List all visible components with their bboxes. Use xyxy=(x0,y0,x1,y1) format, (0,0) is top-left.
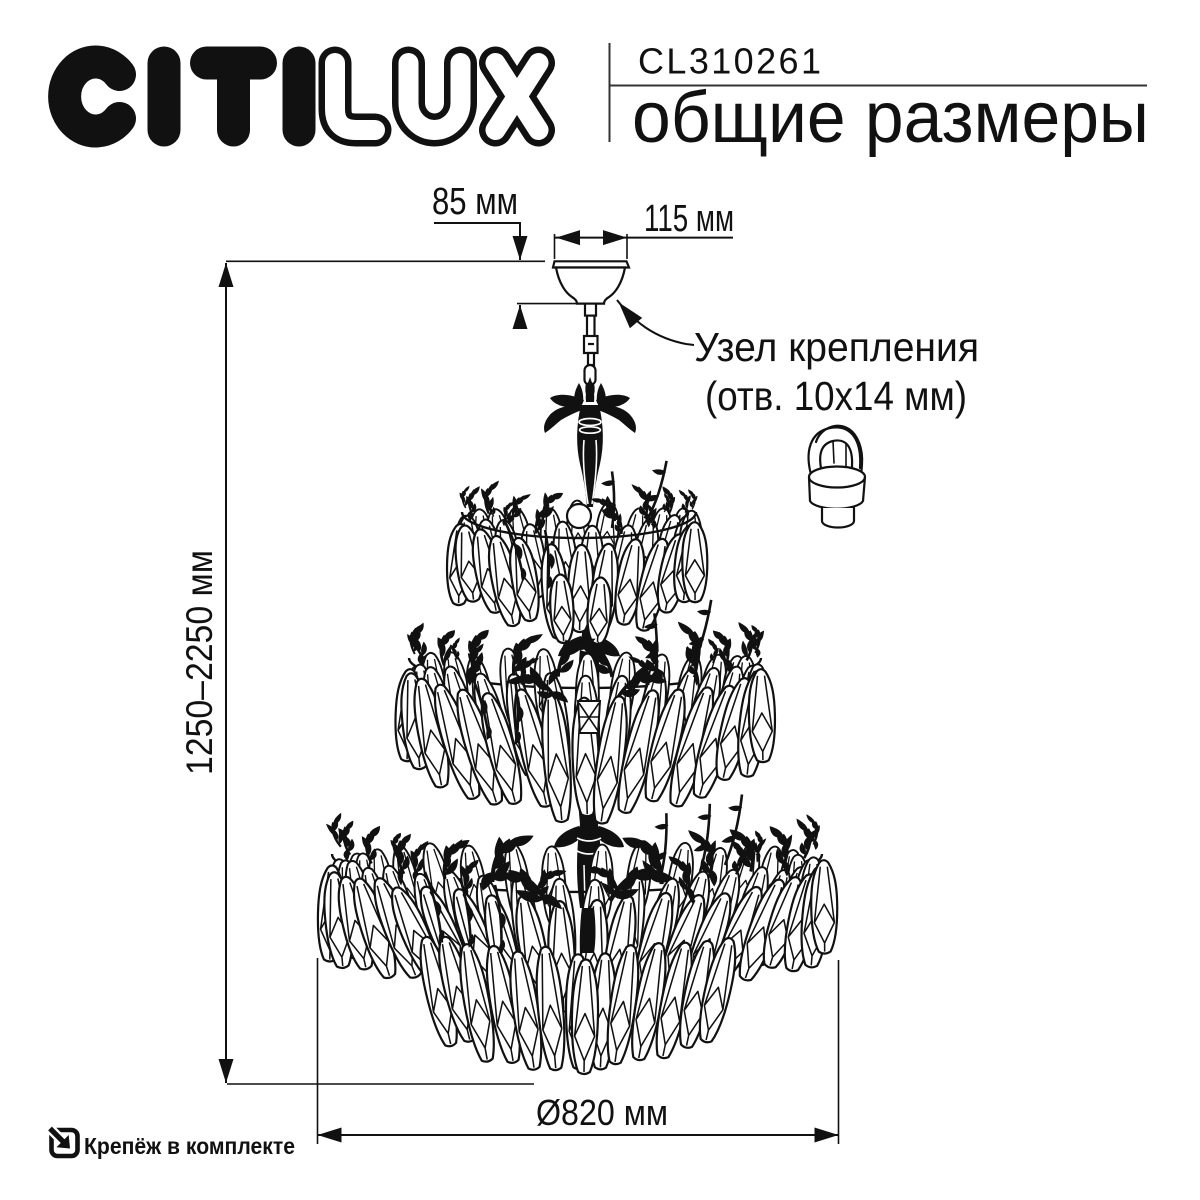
svg-text:(отв. 10х14 мм): (отв. 10х14 мм) xyxy=(705,373,967,419)
svg-text:115 мм: 115 мм xyxy=(644,198,734,240)
svg-text:Узел крепления: Узел крепления xyxy=(694,324,979,370)
svg-text:общие размеры: общие размеры xyxy=(632,78,1149,158)
svg-text:CL310261: CL310261 xyxy=(638,41,821,82)
svg-text:Ø820 мм: Ø820 мм xyxy=(536,1092,668,1133)
svg-text:85 мм: 85 мм xyxy=(432,181,518,223)
svg-text:Крепёж в комплекте: Крепёж в комплекте xyxy=(84,1133,295,1159)
svg-text:1250–2250 мм: 1250–2250 мм xyxy=(179,550,220,775)
